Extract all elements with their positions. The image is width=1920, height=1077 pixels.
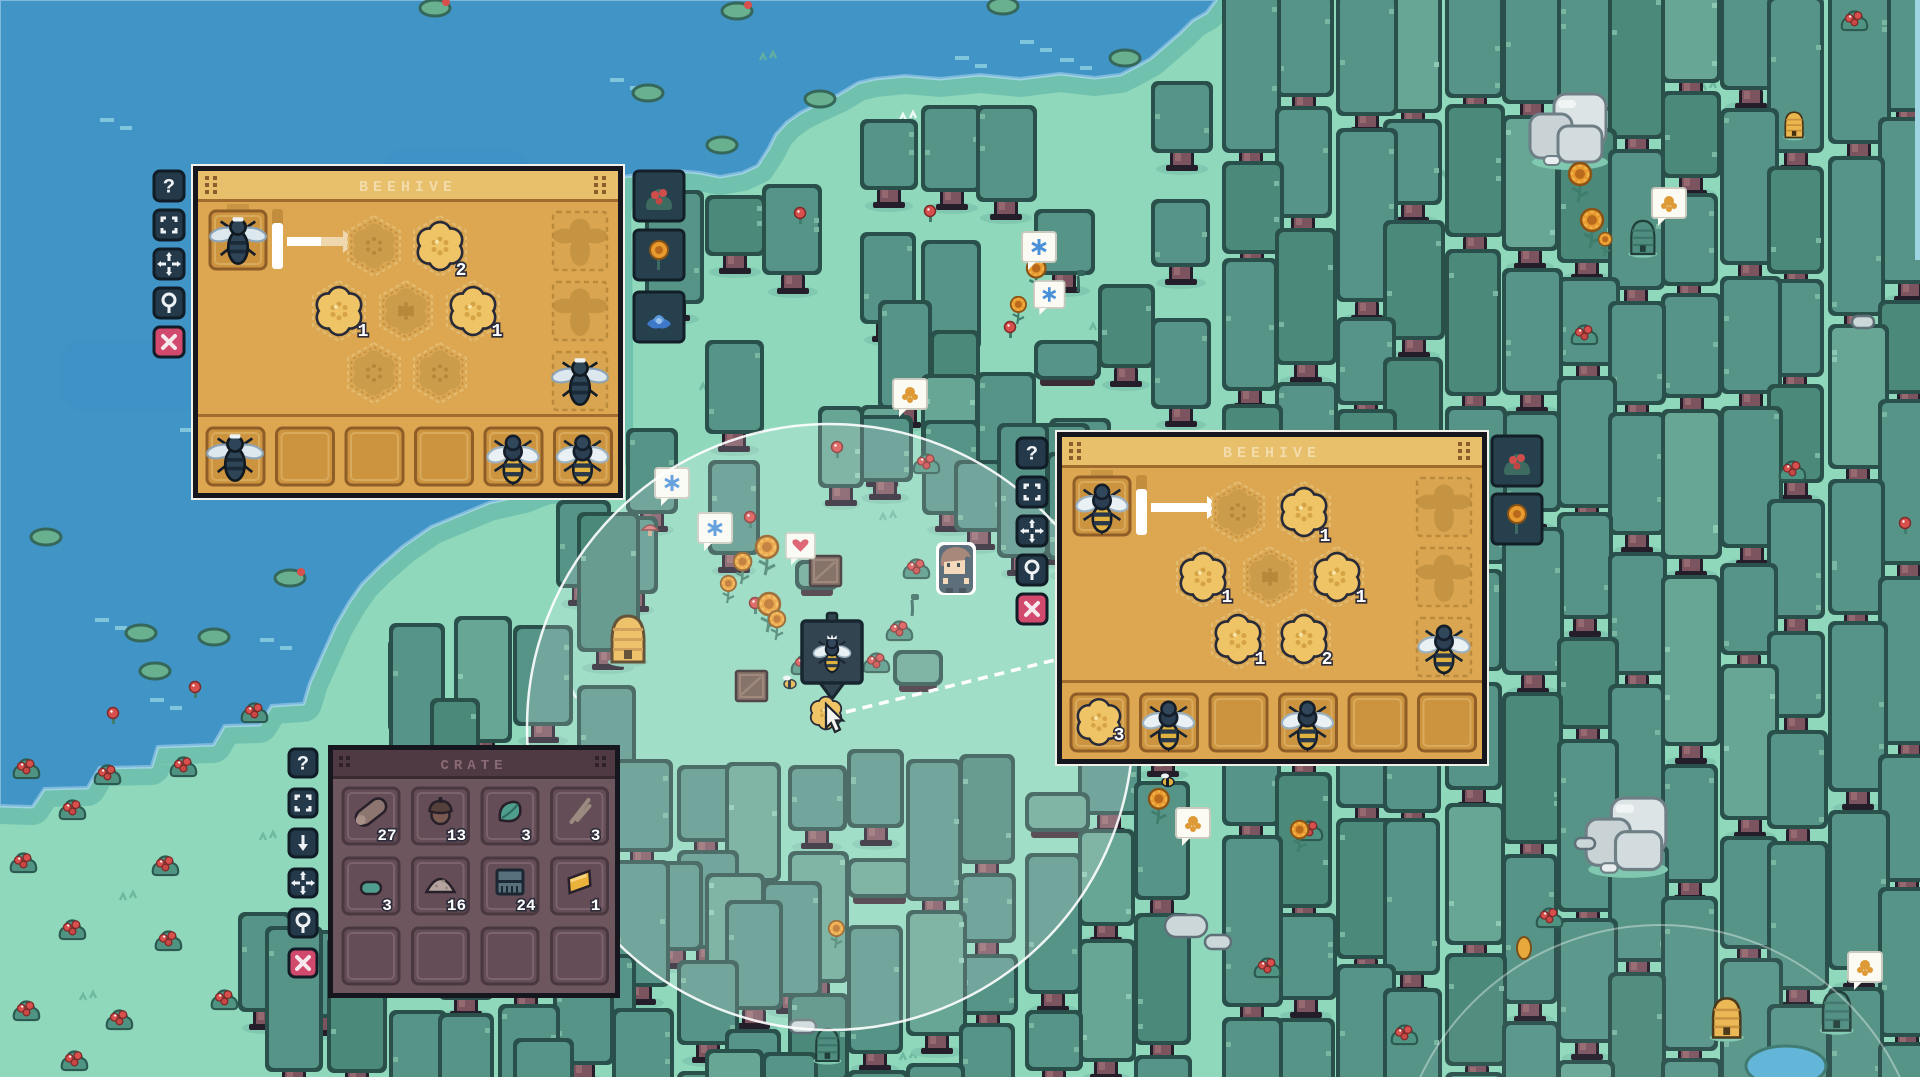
svg-text:3: 3 [521, 827, 531, 845]
svg-text:1: 1 [591, 897, 601, 915]
svg-text:?: ? [297, 754, 309, 777]
svg-text:16: 16 [447, 897, 466, 915]
svg-text:?: ? [1026, 444, 1038, 467]
svg-text:BEEHIVE: BEEHIVE [1223, 445, 1321, 462]
svg-text:1: 1 [358, 322, 369, 342]
svg-text:2: 2 [456, 261, 467, 281]
svg-text:1: 1 [1255, 650, 1266, 670]
svg-text:?: ? [163, 177, 175, 200]
svg-text:3: 3 [382, 897, 392, 915]
svg-text:3: 3 [1114, 726, 1125, 746]
svg-text:27: 27 [377, 827, 396, 845]
svg-text:13: 13 [447, 827, 466, 845]
svg-text:3: 3 [591, 827, 601, 845]
svg-text:2: 2 [1322, 650, 1333, 670]
svg-text:1: 1 [1356, 588, 1367, 608]
svg-text:24: 24 [516, 897, 536, 915]
svg-text:CRATE: CRATE [440, 758, 507, 774]
svg-text:1: 1 [1222, 588, 1233, 608]
svg-text:BEEHIVE: BEEHIVE [359, 179, 457, 196]
svg-text:1: 1 [492, 322, 503, 342]
svg-text:1: 1 [1320, 527, 1331, 547]
